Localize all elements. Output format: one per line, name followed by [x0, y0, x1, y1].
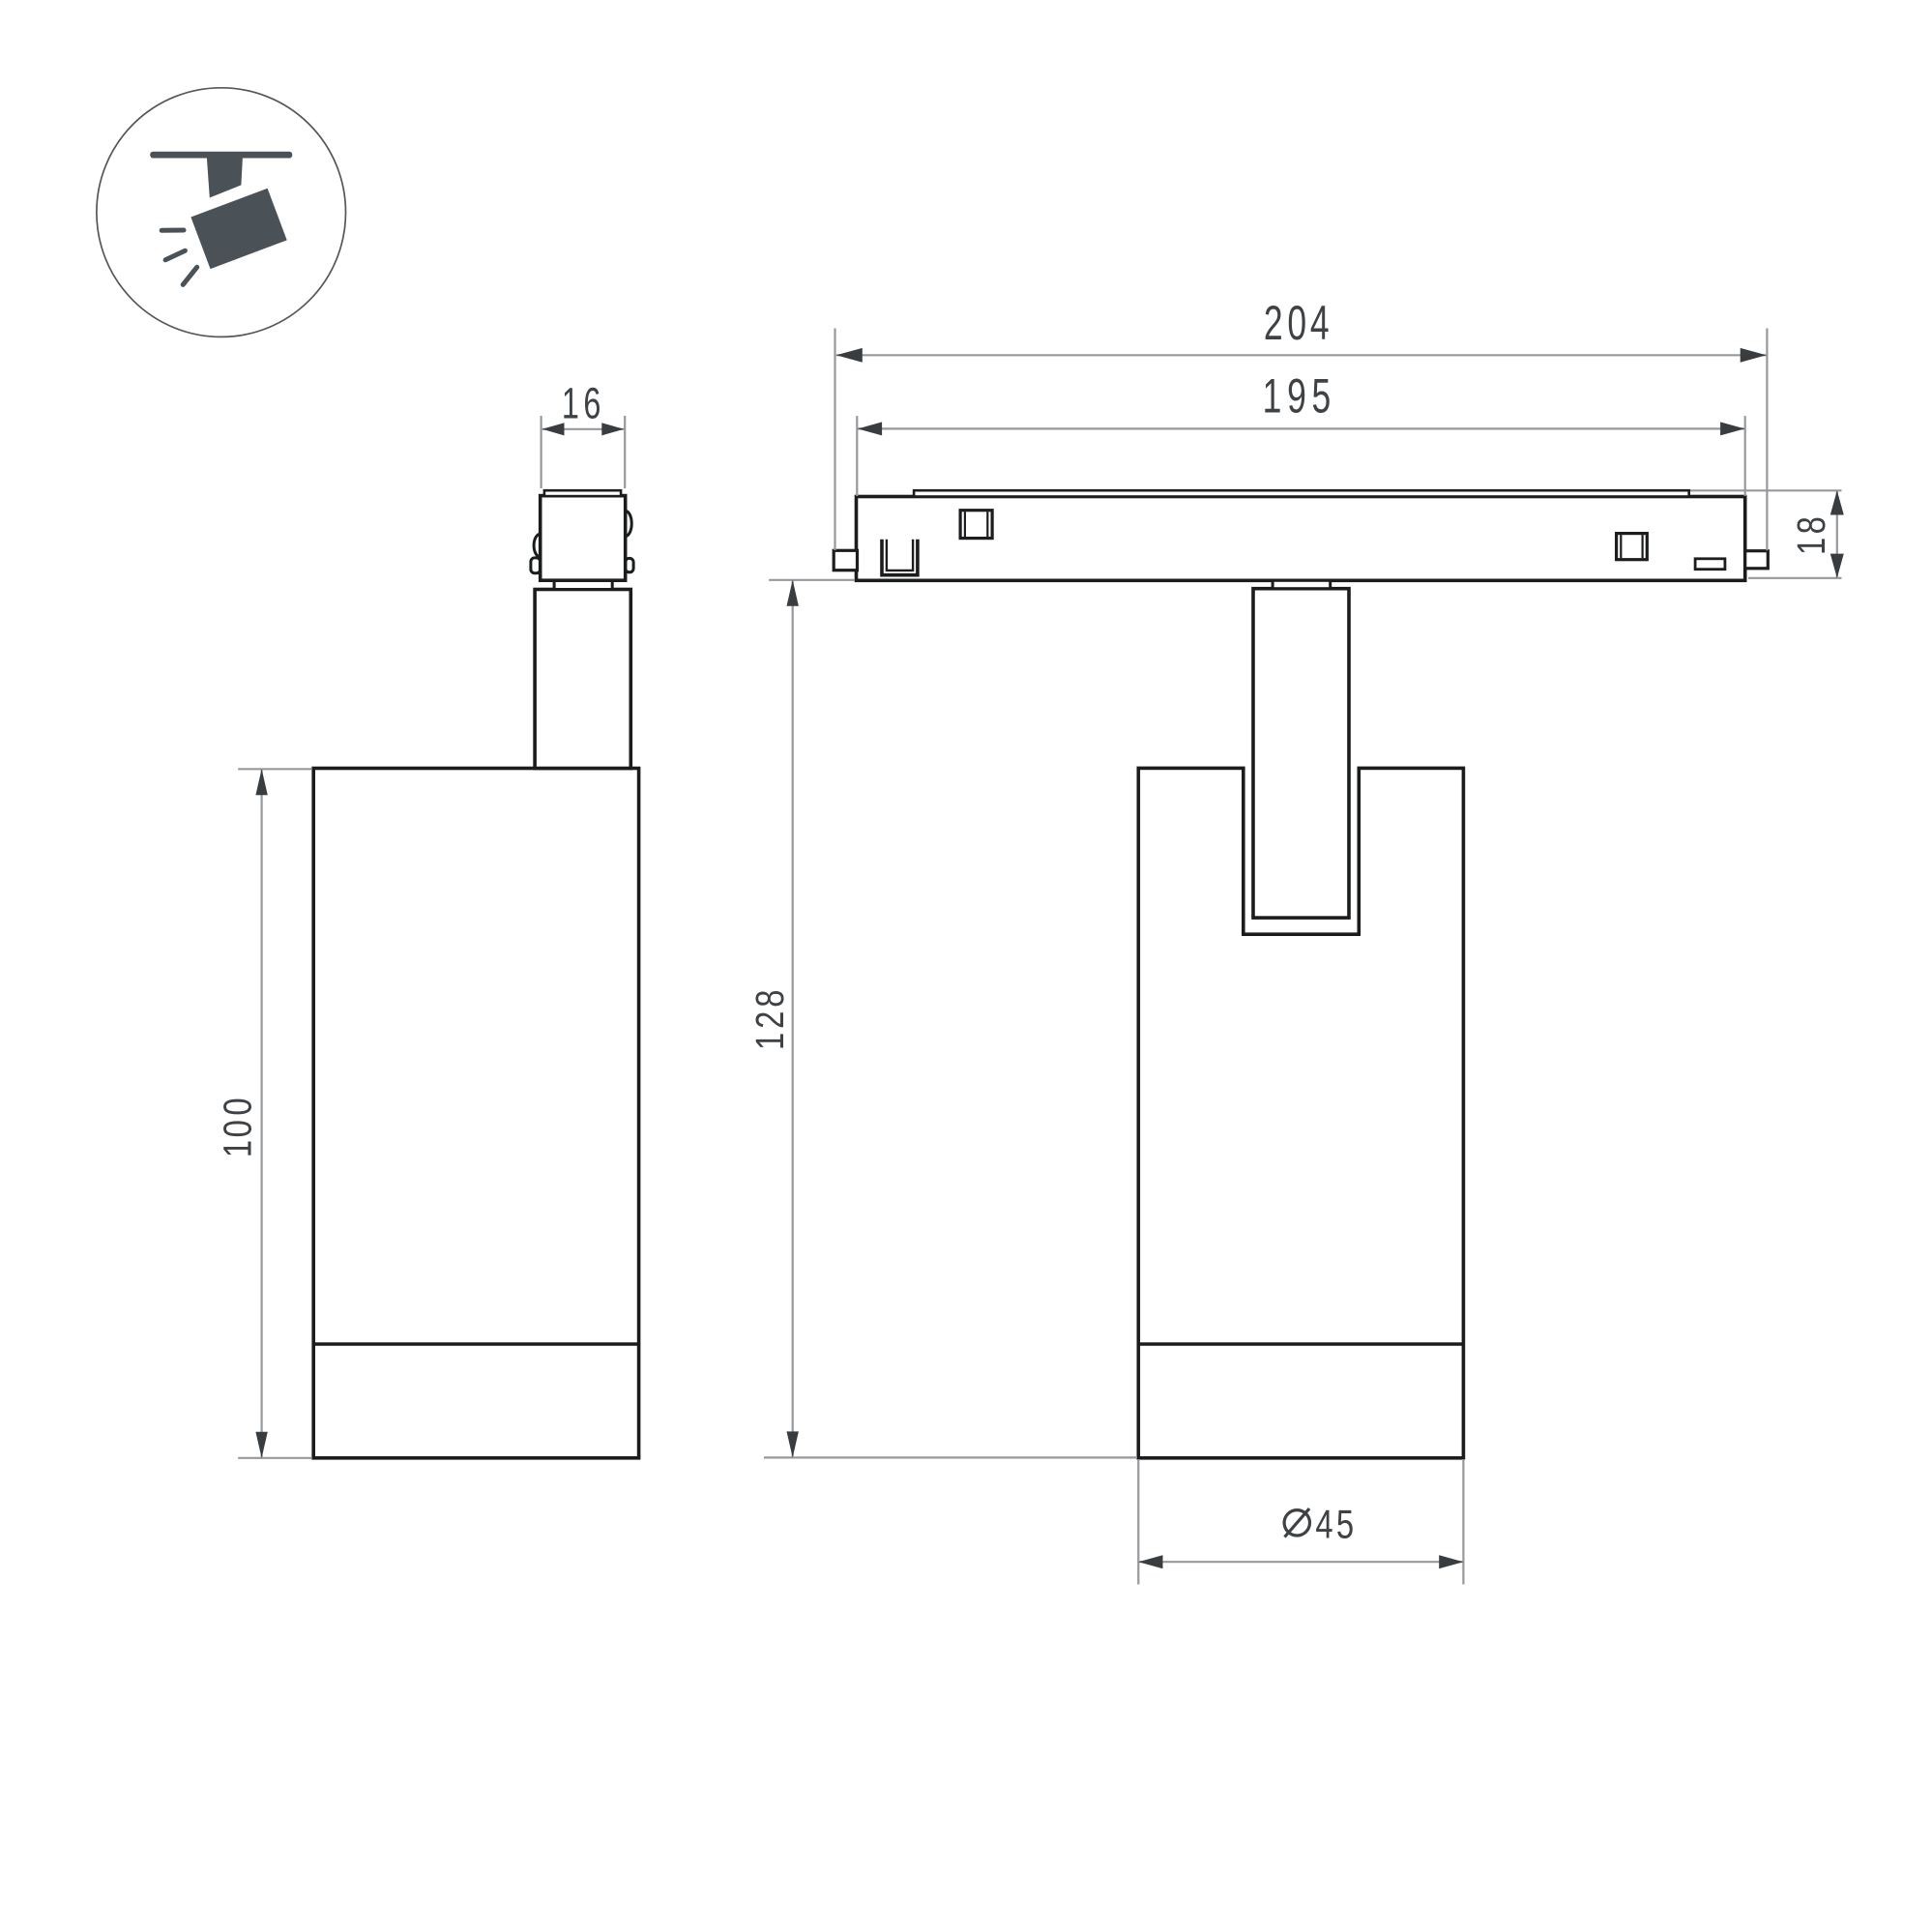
svg-text:4: 4 — [1310, 297, 1330, 350]
svg-text:1: 1 — [1788, 538, 1832, 555]
svg-text:1: 1 — [215, 1140, 259, 1157]
svg-text:5: 5 — [1312, 369, 1332, 423]
svg-text:1: 1 — [562, 380, 579, 427]
svg-text:4: 4 — [1315, 1501, 1332, 1546]
svg-text:5: 5 — [1336, 1501, 1354, 1546]
svg-text:2: 2 — [746, 1011, 791, 1029]
svg-text:8: 8 — [746, 989, 791, 1007]
svg-text:0: 0 — [1287, 297, 1306, 350]
svg-text:0: 0 — [215, 1098, 259, 1115]
svg-text:0: 0 — [215, 1120, 259, 1137]
svg-text:6: 6 — [583, 380, 600, 427]
svg-text:1: 1 — [746, 1033, 791, 1050]
svg-text:9: 9 — [1287, 369, 1306, 423]
svg-text:1: 1 — [1263, 369, 1282, 423]
svg-text:8: 8 — [1788, 516, 1832, 534]
svg-text:2: 2 — [1264, 297, 1283, 350]
